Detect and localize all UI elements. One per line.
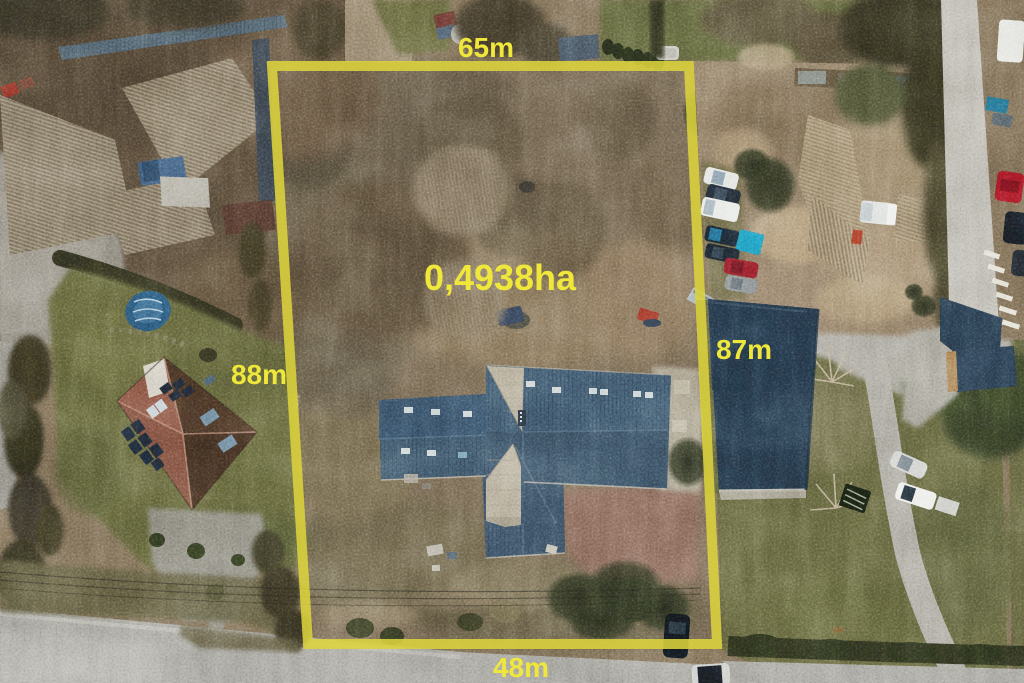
svg-text:88m: 88m bbox=[231, 359, 287, 390]
svg-text:87m: 87m bbox=[716, 334, 772, 365]
svg-text:48m: 48m bbox=[493, 652, 549, 683]
svg-text:65m: 65m bbox=[458, 32, 514, 63]
svg-text:0,4938ha: 0,4938ha bbox=[424, 257, 577, 298]
